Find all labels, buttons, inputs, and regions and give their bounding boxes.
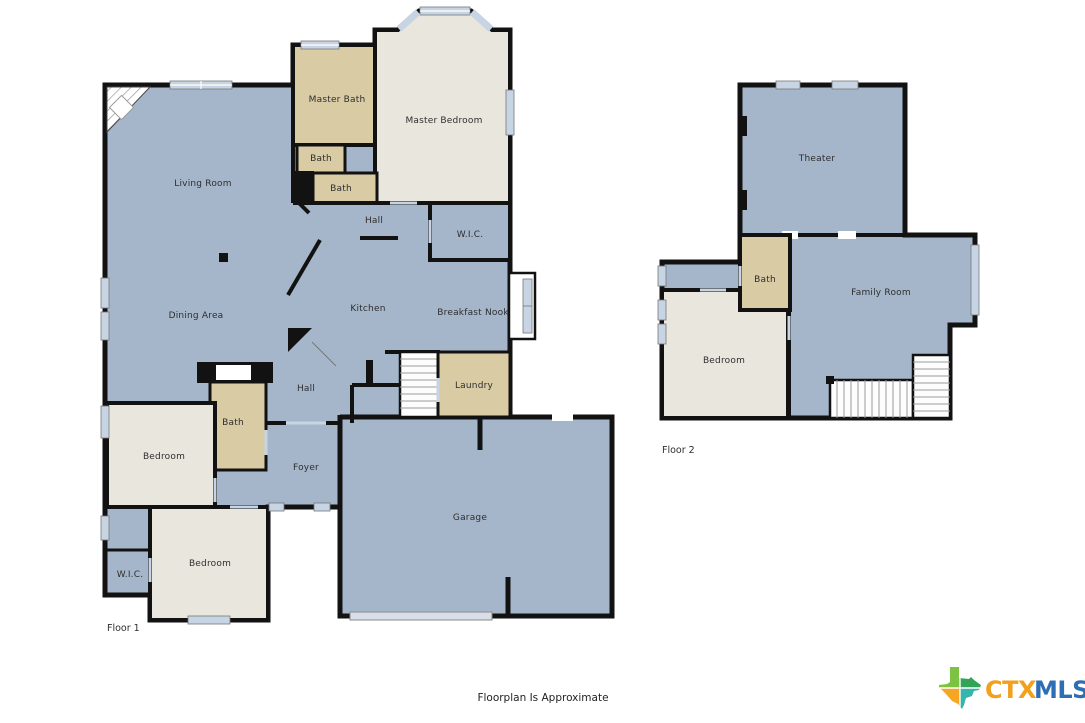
floor2-plan: Theater Bath Family Room Bedroom Floor 2 [658,81,979,456]
theater-wall-tab-2 [738,190,747,210]
logo-text-mls: MLS [1034,676,1085,704]
stairs-floor2-turn [913,355,950,418]
room-label-dining-area: Dining Area [169,311,224,321]
room-label-hall-upper: Hall [365,216,383,226]
room-label-master-bath: Master Bath [309,95,366,105]
floor1-label: Floor 1 [107,623,140,634]
floorplan-image: Living Room Master Bath Master Bedroom B… [0,0,1085,723]
shower-inset [216,365,251,380]
caption-text: Floorplan Is Approximate [477,692,608,704]
room-label-hall-lower: Hall [297,384,315,394]
logo-text-ctx: CTX [985,676,1037,704]
floor2-label: Floor 2 [662,445,695,456]
room-label-master-bedroom: Master Bedroom [405,116,482,126]
room-label-family-room: Family Room [851,288,911,298]
room-label-foyer: Foyer [293,463,319,473]
stairs-floor1 [400,352,438,417]
room-label-laundry: Laundry [455,381,494,391]
room-label-garage: Garage [453,513,487,523]
ctxmls-logo: CTX MLS [938,666,1085,710]
theater-wall-tab-1 [738,116,747,136]
room-bath2 [740,235,790,310]
room-label-bath2: Bath [754,275,776,285]
room-label-bedroom-front: Bedroom [143,452,185,462]
texas-state-icon [938,666,982,710]
floorplan-svg: Living Room Master Bath Master Bedroom B… [0,0,1085,723]
room-label-wic-master: W.I.C. [457,230,484,240]
room-label-bath-lower: Bath [330,184,352,194]
room-label-breakfast-nook: Breakfast Nook [437,308,509,318]
stairs-corner-post [826,376,834,384]
room-label-theater: Theater [798,154,836,164]
room-label-bath-guest: Bath [222,418,244,428]
room-master-bedroom [375,11,510,203]
room-label-living-room: Living Room [174,179,231,189]
theater-door-gap-2 [838,231,856,239]
room-label-bath-upper: Bath [310,154,332,164]
garage-entry-gap [552,413,573,421]
room-label-bedroom-back: Bedroom [189,559,231,569]
room-label-kitchen: Kitchen [350,304,385,314]
room-label-wic-small: W.I.C. [117,570,144,580]
floor1-plan: Living Room Master Bath Master Bedroom B… [101,7,612,634]
room-label-bedroom2: Bedroom [703,356,745,366]
garage-door [350,612,492,620]
dining-column [219,253,228,262]
